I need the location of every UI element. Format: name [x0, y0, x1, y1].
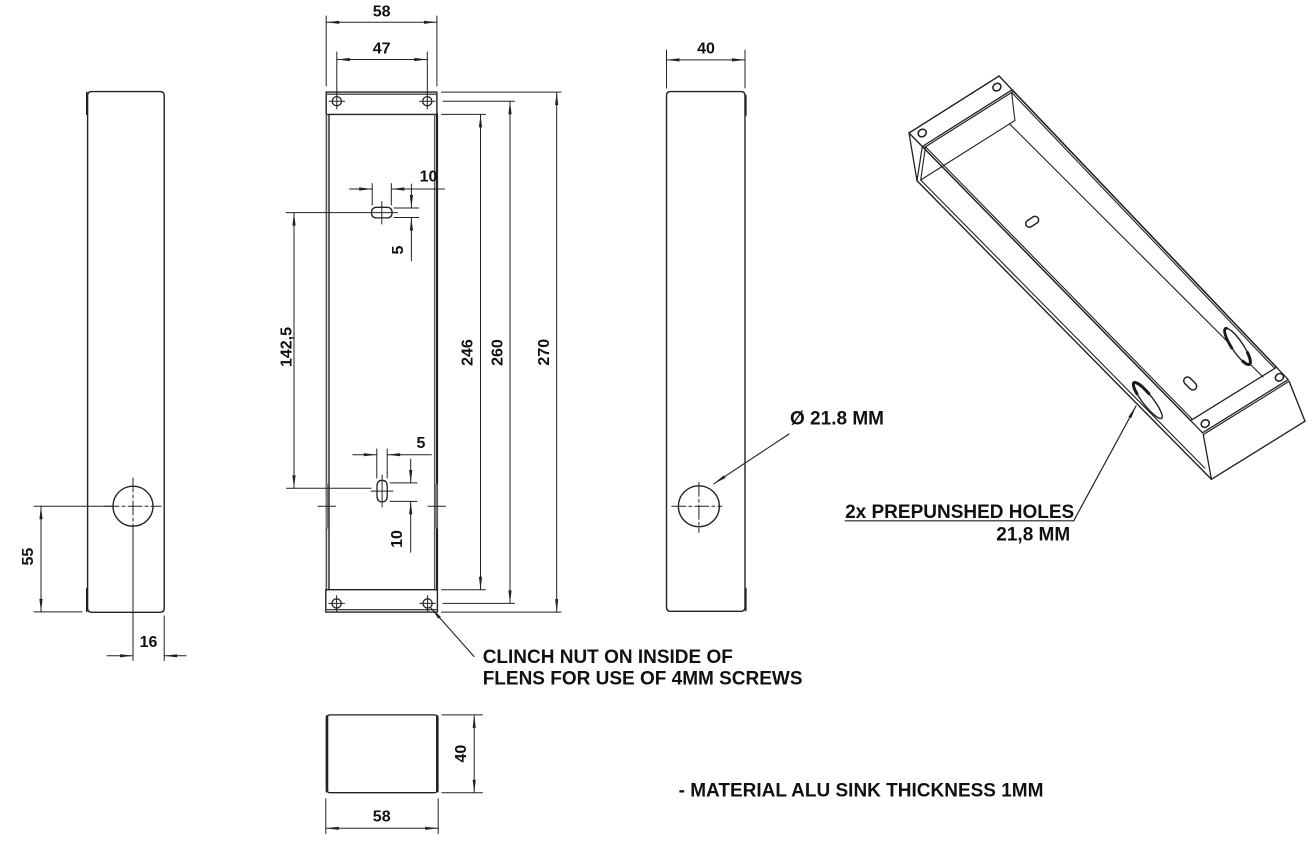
svg-text:10: 10 — [389, 530, 406, 548]
svg-text:Ø 21.8 MM: Ø 21.8 MM — [790, 409, 884, 430]
svg-text:260: 260 — [489, 339, 506, 366]
svg-text:5: 5 — [417, 435, 426, 452]
svg-text:FLENS FOR USE OF 4MM SCREWS: FLENS FOR USE OF 4MM SCREWS — [483, 669, 803, 690]
svg-text:2x PREPUNSHED HOLES: 2x PREPUNSHED HOLES — [845, 502, 1074, 523]
svg-text:270: 270 — [536, 339, 553, 366]
svg-text:142,5: 142,5 — [279, 327, 296, 367]
svg-text:40: 40 — [453, 745, 470, 763]
svg-text:40: 40 — [697, 41, 715, 58]
svg-text:58: 58 — [373, 4, 391, 21]
svg-text:21,8 MM: 21,8 MM — [996, 525, 1070, 546]
svg-text:55: 55 — [20, 548, 37, 566]
svg-text:47: 47 — [373, 41, 391, 58]
svg-text:246: 246 — [460, 339, 477, 366]
svg-text:10: 10 — [420, 169, 438, 186]
svg-text:CLINCH NUT ON INSIDE OF: CLINCH NUT ON INSIDE OF — [483, 647, 733, 668]
svg-text:58: 58 — [373, 809, 391, 826]
svg-text:5: 5 — [390, 245, 407, 254]
svg-text:16: 16 — [140, 634, 158, 651]
svg-text:- MATERIAL ALU SINK THICKNESS: - MATERIAL ALU SINK THICKNESS 1MM — [679, 780, 1044, 801]
